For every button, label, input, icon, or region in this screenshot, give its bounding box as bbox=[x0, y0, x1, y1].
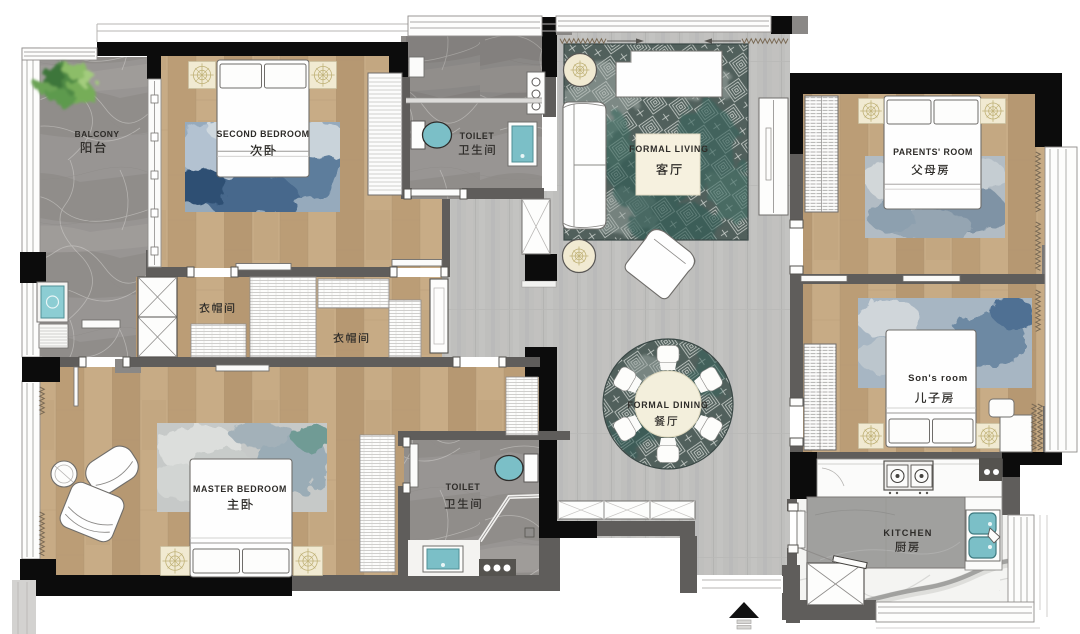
svg-text:MASTER BEDROOM: MASTER BEDROOM bbox=[193, 484, 287, 494]
svg-text:PARENTS' ROOM: PARENTS' ROOM bbox=[893, 147, 973, 157]
svg-text:SECOND BEDROOM: SECOND BEDROOM bbox=[216, 129, 309, 139]
svg-text:TOILET: TOILET bbox=[460, 131, 495, 141]
svg-text:FORMAL LIVING: FORMAL LIVING bbox=[629, 144, 709, 154]
svg-text:TOILET: TOILET bbox=[446, 482, 481, 492]
svg-text:FORMAL DINING: FORMAL DINING bbox=[627, 400, 708, 410]
svg-text:BALCONY: BALCONY bbox=[75, 129, 120, 139]
svg-text:Son's room: Son's room bbox=[908, 373, 968, 384]
svg-text:KITCHEN: KITCHEN bbox=[883, 528, 932, 538]
